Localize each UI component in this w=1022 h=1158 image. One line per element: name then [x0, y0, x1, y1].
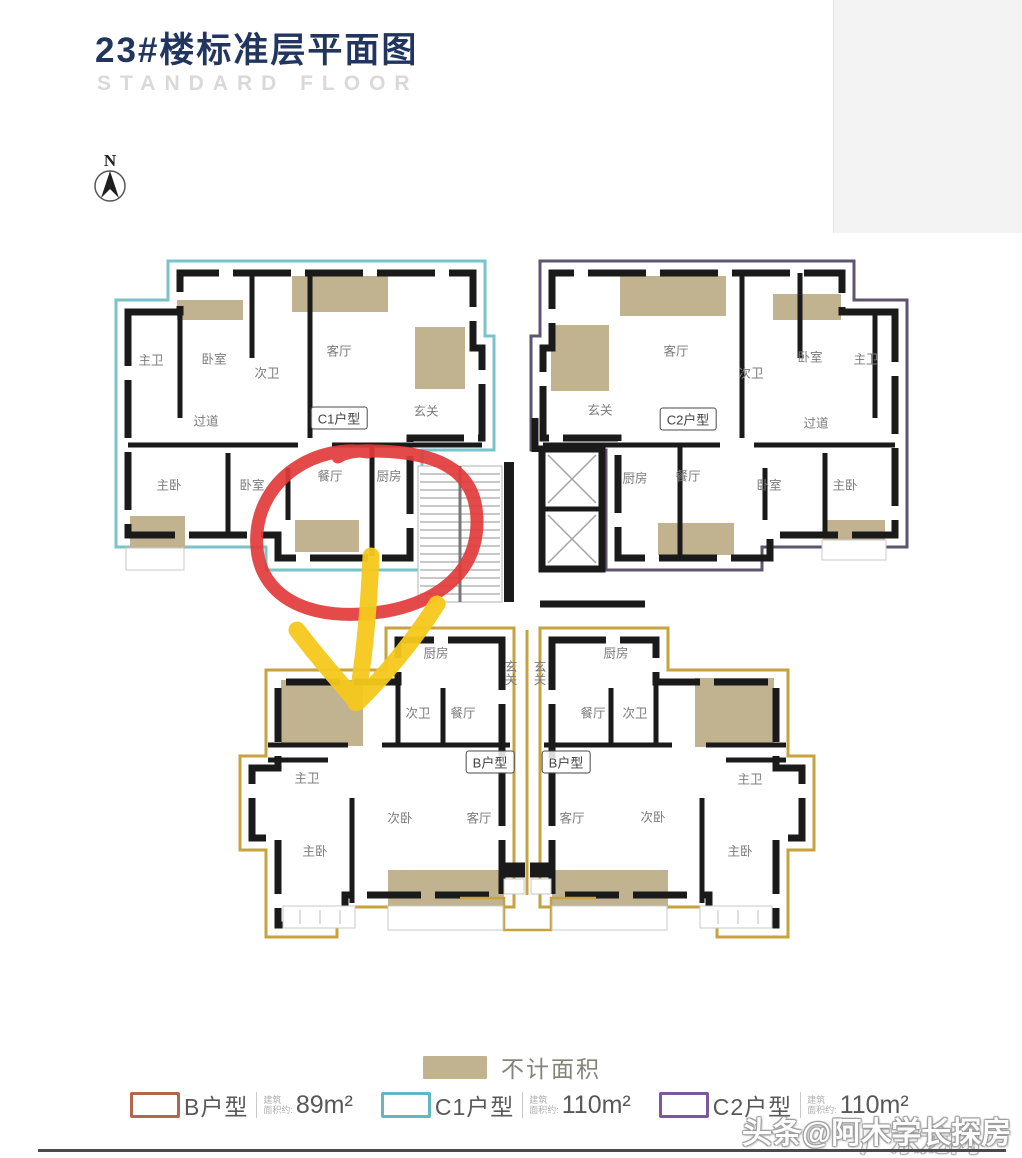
legend-name-b: B户型 — [184, 1088, 248, 1122]
legend-swatch-c2 — [659, 1092, 709, 1118]
room-label-kitchen: 厨房 — [376, 471, 401, 484]
compass-north-label: N — [104, 151, 117, 170]
room-label-master-bedroom: 主卧 — [832, 480, 857, 493]
room-label-master-bedroom: 主卧 — [156, 480, 181, 493]
legend-area-prefix-line1: 建筑 — [263, 1095, 293, 1105]
unit-tag-b-right: B户型 — [542, 751, 591, 774]
room-label-dining-room: 餐厅 — [450, 708, 475, 721]
room-label-dining-room: 餐厅 — [580, 708, 605, 721]
room-label-living-room: 客厅 — [326, 346, 351, 359]
legend-divider — [522, 1092, 523, 1118]
legend-area-prefix: 建筑 面积约: — [263, 1095, 293, 1115]
room-label-foyer: 玄关 — [587, 405, 612, 418]
footer-divider — [38, 1149, 1006, 1152]
room-label-dining-room: 餐厅 — [675, 471, 700, 484]
room-label-kitchen: 厨房 — [423, 648, 448, 661]
legend-swatch-c1 — [381, 1092, 431, 1118]
room-label-bedroom: 卧室 — [756, 480, 781, 493]
room-label-second-bath: 次卫 — [254, 368, 279, 381]
legend-item-b: B户型 建筑 面积约: 89m² — [130, 1088, 353, 1122]
watermark: 广东龙网 头条@阿木学长探房 — [742, 1104, 1022, 1154]
room-label-second-bedroom: 次卧 — [640, 812, 665, 825]
floor-plan-canvas: N — [0, 0, 1022, 1158]
room-label-master-bath: 主卫 — [138, 355, 163, 368]
room-label-living-room: 客厅 — [466, 813, 491, 826]
north-needle-icon — [101, 171, 119, 198]
legend-item-c1: C1户型 建筑 面积约: 110m² — [381, 1088, 631, 1122]
watermark-text: 头条@阿木学长探房 — [742, 1108, 1011, 1152]
room-label-second-bath: 次卫 — [405, 708, 430, 721]
room-label-foyer: 玄关 — [533, 661, 547, 687]
room-label-bedroom: 卧室 — [797, 352, 822, 365]
unit-tag-c1: C1户型 — [311, 407, 368, 430]
no-area-label: 不计面积 — [501, 1050, 601, 1084]
legend-divider — [256, 1092, 257, 1118]
room-label-kitchen: 厨房 — [603, 648, 628, 661]
room-label-dining-room: 餐厅 — [317, 471, 342, 484]
room-label-bedroom: 卧室 — [239, 480, 264, 493]
legend-area-prefix: 建筑 面积约: — [529, 1095, 559, 1115]
no-area-swatch — [423, 1056, 487, 1079]
legend-swatch-b — [130, 1092, 180, 1118]
legend-value-c1: 110m² — [562, 1091, 631, 1120]
room-label-hallway: 过道 — [803, 418, 828, 431]
room-label-bedroom: 卧室 — [201, 354, 226, 367]
legend-area-prefix-line2: 面积约: — [529, 1105, 559, 1115]
legend-name-c1: C1户型 — [435, 1088, 514, 1122]
room-label-hallway: 过道 — [193, 416, 218, 429]
unit-tag-b-left: B户型 — [466, 751, 515, 774]
room-label-second-bedroom: 次卧 — [387, 813, 412, 826]
legend-area-prefix-line1: 建筑 — [529, 1095, 559, 1105]
room-label-master-bath: 主卫 — [294, 773, 319, 786]
floor-plan-page: 23#楼标准层平面图 STANDARD FLOOR N — [0, 0, 1022, 1158]
room-label-master-bedroom: 主卧 — [302, 846, 327, 859]
room-label-second-bath: 次卫 — [738, 368, 763, 381]
room-label-master-bedroom: 主卧 — [727, 846, 752, 859]
unit-tag-c2: C2户型 — [660, 408, 717, 431]
room-label-second-bath: 次卫 — [622, 708, 647, 721]
legend-value-b: 89m² — [296, 1091, 353, 1120]
elevator-shafts — [542, 449, 602, 569]
room-label-living-room: 客厅 — [559, 813, 584, 826]
room-label-kitchen: 厨房 — [622, 473, 647, 486]
room-label-living-room: 客厅 — [663, 346, 688, 359]
room-label-master-bath: 主卫 — [737, 774, 762, 787]
compass: N — [95, 151, 125, 201]
room-label-foyer: 玄关 — [413, 406, 438, 419]
legend-area-prefix-line2: 面积约: — [263, 1105, 293, 1115]
legend-no-area: 不计面积 — [423, 1050, 601, 1084]
room-label-master-bath: 主卫 — [853, 354, 878, 367]
room-label-foyer: 玄关 — [504, 661, 518, 687]
